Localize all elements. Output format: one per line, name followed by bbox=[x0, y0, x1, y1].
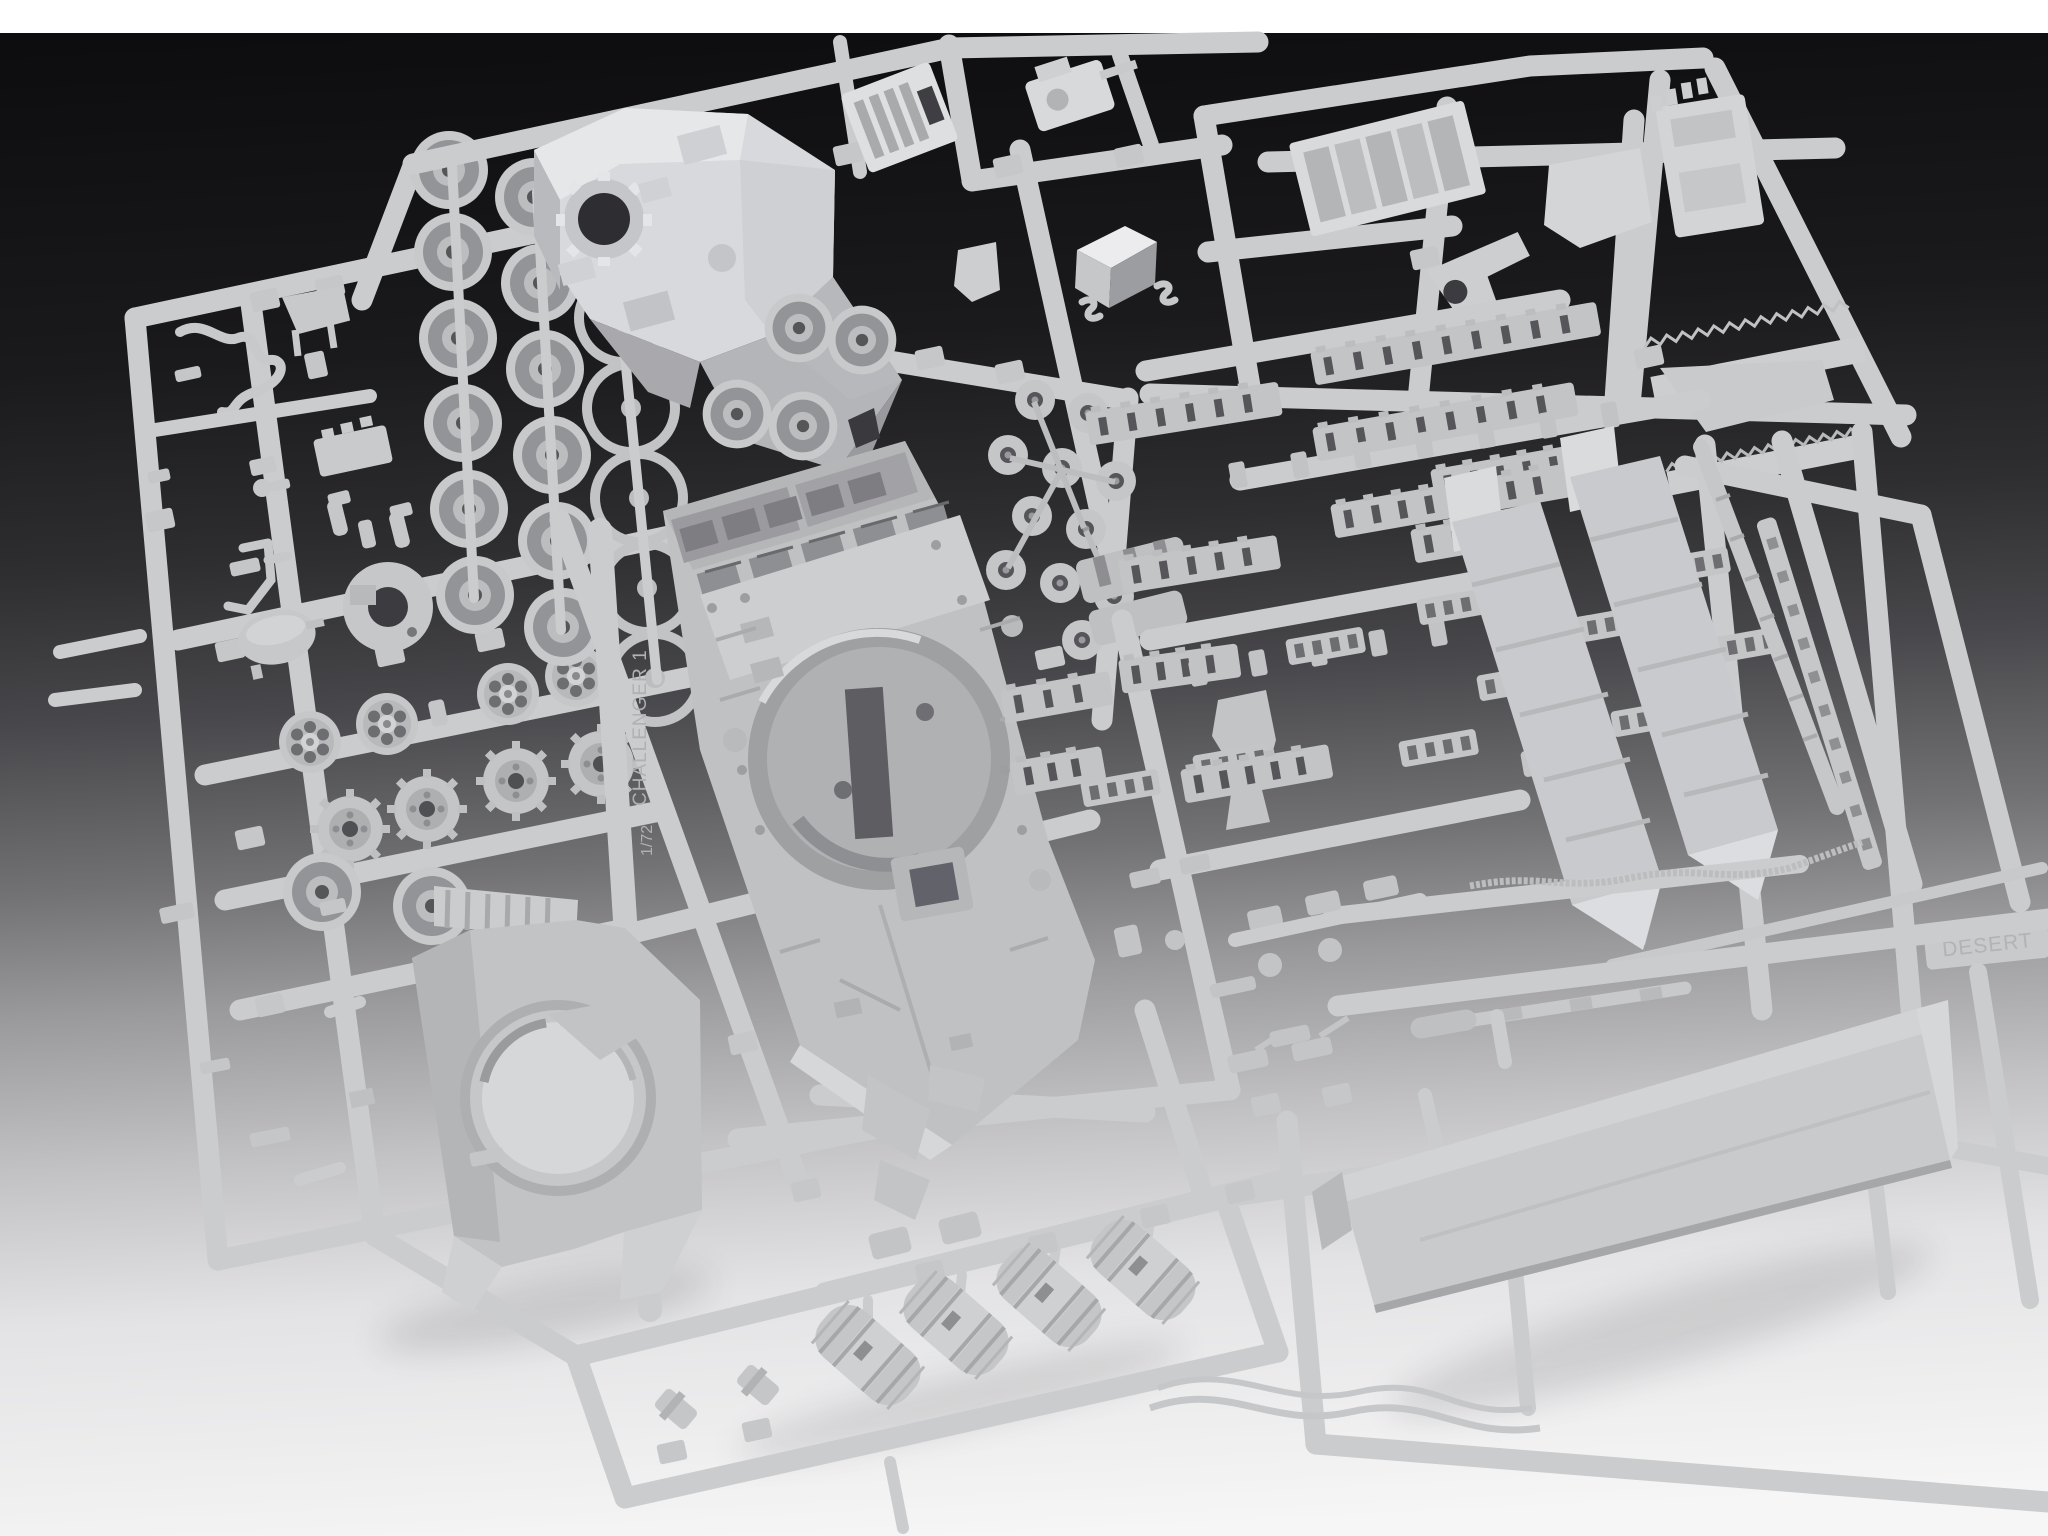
svg-text:CHALLENGER 1: CHALLENGER 1 bbox=[630, 649, 651, 806]
svg-text:1/72: 1/72 bbox=[639, 825, 656, 856]
